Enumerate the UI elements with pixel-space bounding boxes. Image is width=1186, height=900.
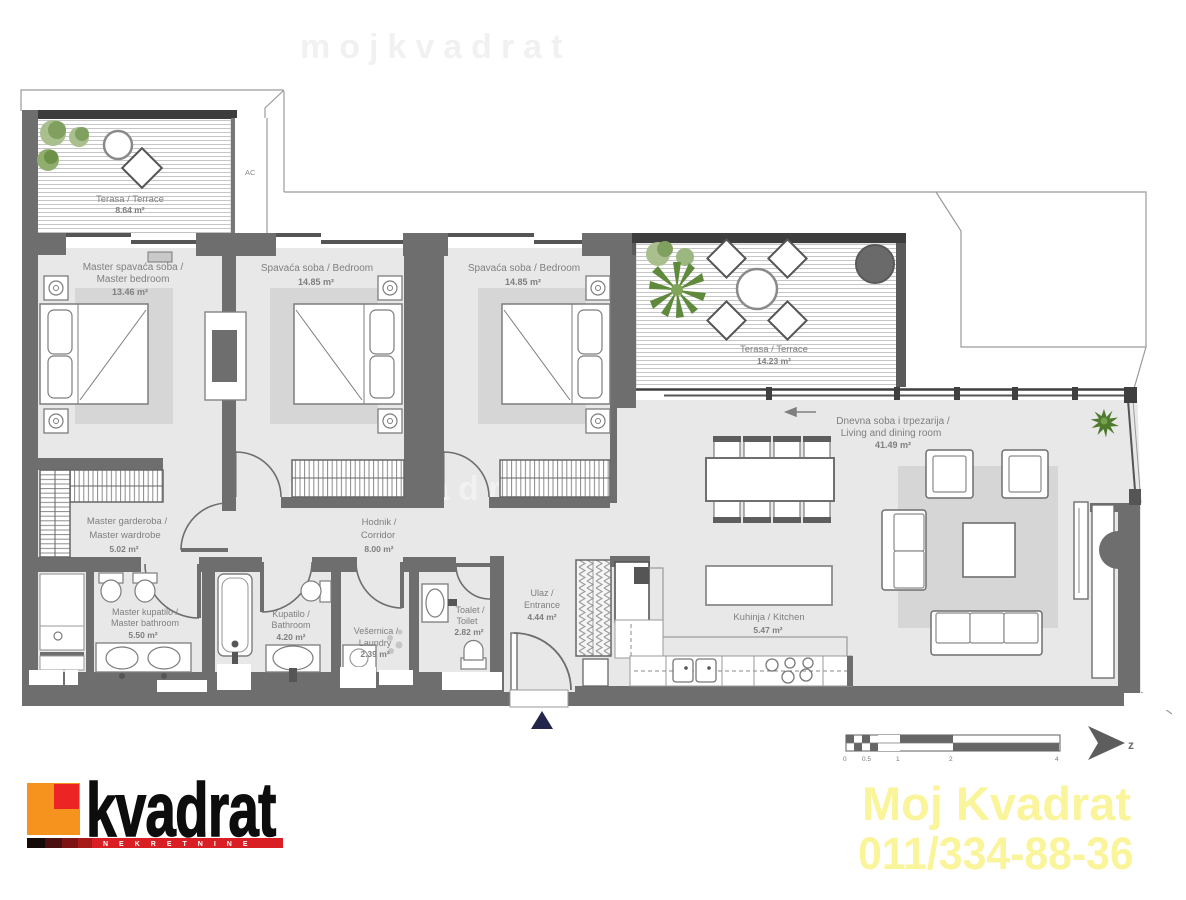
svg-text:41.49 m²: 41.49 m² bbox=[875, 440, 911, 450]
svg-text:NEKRETNINE: NEKRETNINE bbox=[103, 841, 259, 848]
svg-text:2.39 m²: 2.39 m² bbox=[360, 649, 389, 659]
svg-text:mojkvadrat: mojkvadrat bbox=[300, 28, 571, 66]
svg-text:1: 1 bbox=[896, 756, 900, 763]
svg-text:8.00 m²: 8.00 m² bbox=[364, 544, 393, 554]
svg-text:Master garderoba /: Master garderoba / bbox=[87, 516, 168, 527]
svg-text:2.82 m²: 2.82 m² bbox=[454, 627, 483, 637]
svg-text:Vešernica /: Vešernica / bbox=[354, 626, 399, 636]
svg-text:Terasa / Terrace: Terasa / Terrace bbox=[96, 194, 164, 205]
svg-text:Toalet /: Toalet / bbox=[455, 605, 485, 615]
svg-text:5.02 m²: 5.02 m² bbox=[109, 544, 138, 554]
svg-text:Master wardrobe: Master wardrobe bbox=[89, 530, 160, 541]
svg-text:Laundry: Laundry bbox=[359, 638, 392, 648]
svg-text:13.46 m²: 13.46 m² bbox=[112, 287, 148, 297]
svg-text:5.50 m²: 5.50 m² bbox=[128, 630, 157, 640]
svg-text:Master bedroom: Master bedroom bbox=[97, 274, 170, 285]
svg-text:011/334-88-36: 011/334-88-36 bbox=[858, 829, 1134, 879]
svg-text:z: z bbox=[1128, 738, 1134, 752]
svg-text:Master kupatilo /: Master kupatilo / bbox=[112, 607, 179, 617]
svg-text:4: 4 bbox=[1055, 756, 1059, 763]
svg-text:Kupatilo /: Kupatilo / bbox=[272, 609, 310, 619]
svg-text:4.44 m²: 4.44 m² bbox=[527, 612, 556, 622]
svg-text:Moj Kvadrat: Moj Kvadrat bbox=[862, 777, 1131, 830]
svg-text:Master spavaća soba /: Master spavaća soba / bbox=[83, 262, 184, 273]
svg-text:0.5: 0.5 bbox=[862, 756, 871, 763]
svg-text:Ulaz /: Ulaz / bbox=[530, 588, 554, 598]
svg-text:Terasa / Terrace: Terasa / Terrace bbox=[740, 344, 808, 355]
svg-text:Spavaća soba / Bedroom: Spavaća soba / Bedroom bbox=[261, 263, 373, 274]
svg-text:14.85 m²: 14.85 m² bbox=[505, 277, 541, 287]
svg-text:Dnevna soba i trpezarija /: Dnevna soba i trpezarija / bbox=[836, 416, 950, 427]
svg-text:Living and dining room: Living and dining room bbox=[841, 428, 942, 439]
svg-text:Entrance: Entrance bbox=[524, 600, 560, 610]
svg-text:Master bathroom: Master bathroom bbox=[111, 618, 179, 628]
svg-text:5.47 m²: 5.47 m² bbox=[753, 625, 782, 635]
svg-text:Corridor: Corridor bbox=[361, 530, 395, 541]
svg-text:2: 2 bbox=[949, 756, 953, 763]
svg-text:Toilet: Toilet bbox=[456, 616, 478, 626]
svg-text:4.20 m²: 4.20 m² bbox=[276, 632, 305, 642]
svg-text:8.64 m²: 8.64 m² bbox=[115, 205, 144, 215]
svg-text:14.23 m²: 14.23 m² bbox=[757, 356, 791, 366]
svg-text:14.85 m²: 14.85 m² bbox=[298, 277, 334, 287]
svg-text:AC: AC bbox=[245, 168, 256, 177]
svg-text:Kuhinja / Kitchen: Kuhinja / Kitchen bbox=[733, 612, 804, 623]
svg-text:Hodnik /: Hodnik / bbox=[362, 517, 397, 528]
svg-text:Bathroom: Bathroom bbox=[271, 620, 310, 630]
svg-text:Spavaća soba / Bedroom: Spavaća soba / Bedroom bbox=[468, 263, 580, 274]
svg-text:0: 0 bbox=[843, 756, 847, 763]
